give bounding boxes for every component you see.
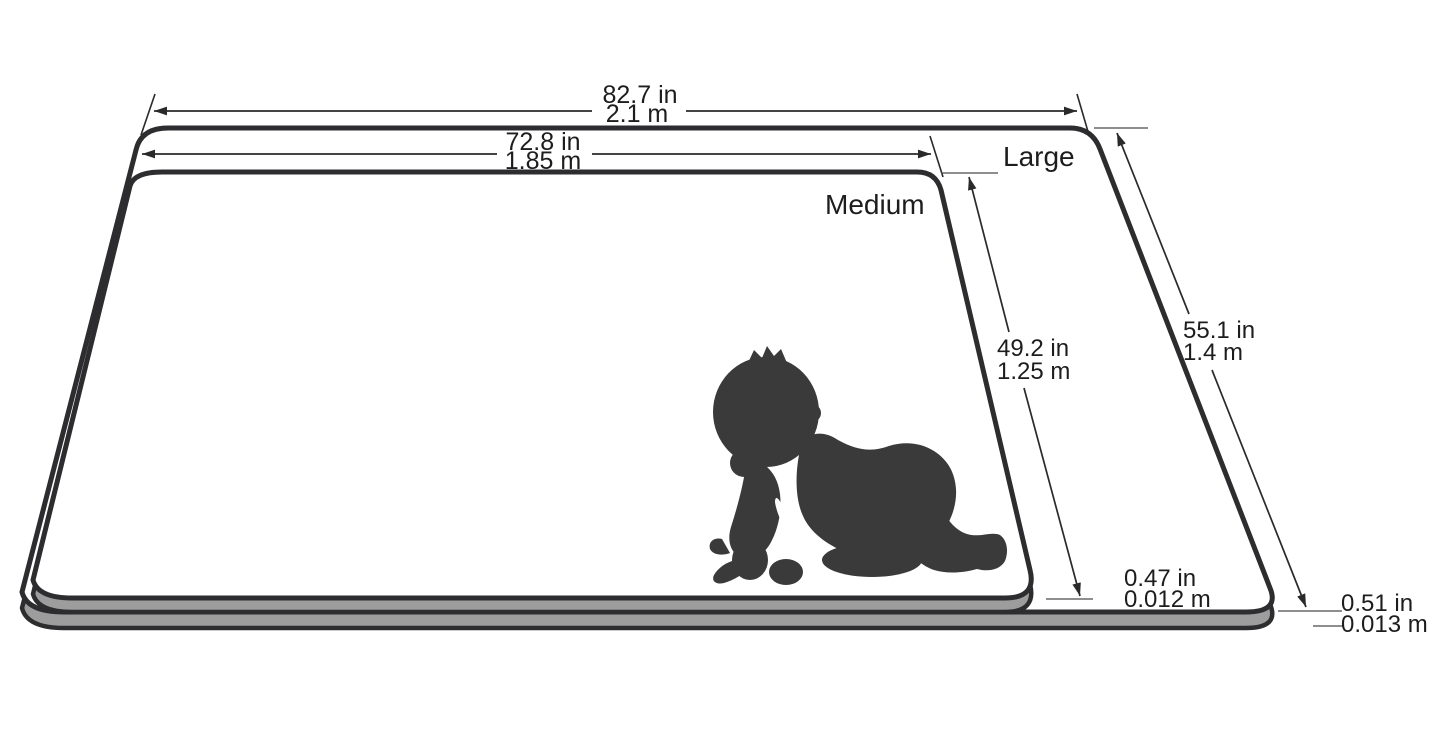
baby-far-knee [822, 543, 922, 577]
large-label: Large [1003, 141, 1075, 172]
medium-thickness-metric: 0.012 m [1124, 586, 1211, 613]
baby-ear [803, 404, 821, 422]
medium-depth-metric: 1.25 m [997, 358, 1070, 385]
baby-far-hand [769, 559, 803, 585]
large-depth-metric: 1.4 m [1183, 339, 1243, 366]
diagram-canvas: 82.7 in 2.1 m 72.8 in 1.85 m Large Mediu… [0, 0, 1445, 743]
large-width-metric: 2.1 m [606, 100, 669, 128]
medium-label: Medium [825, 189, 925, 220]
medium-width-metric: 1.85 m [505, 147, 581, 175]
large-thickness-metric: 0.013 m [1341, 611, 1428, 638]
mat-size-diagram: 82.7 in 2.1 m 72.8 in 1.85 m Large Mediu… [0, 0, 1445, 743]
